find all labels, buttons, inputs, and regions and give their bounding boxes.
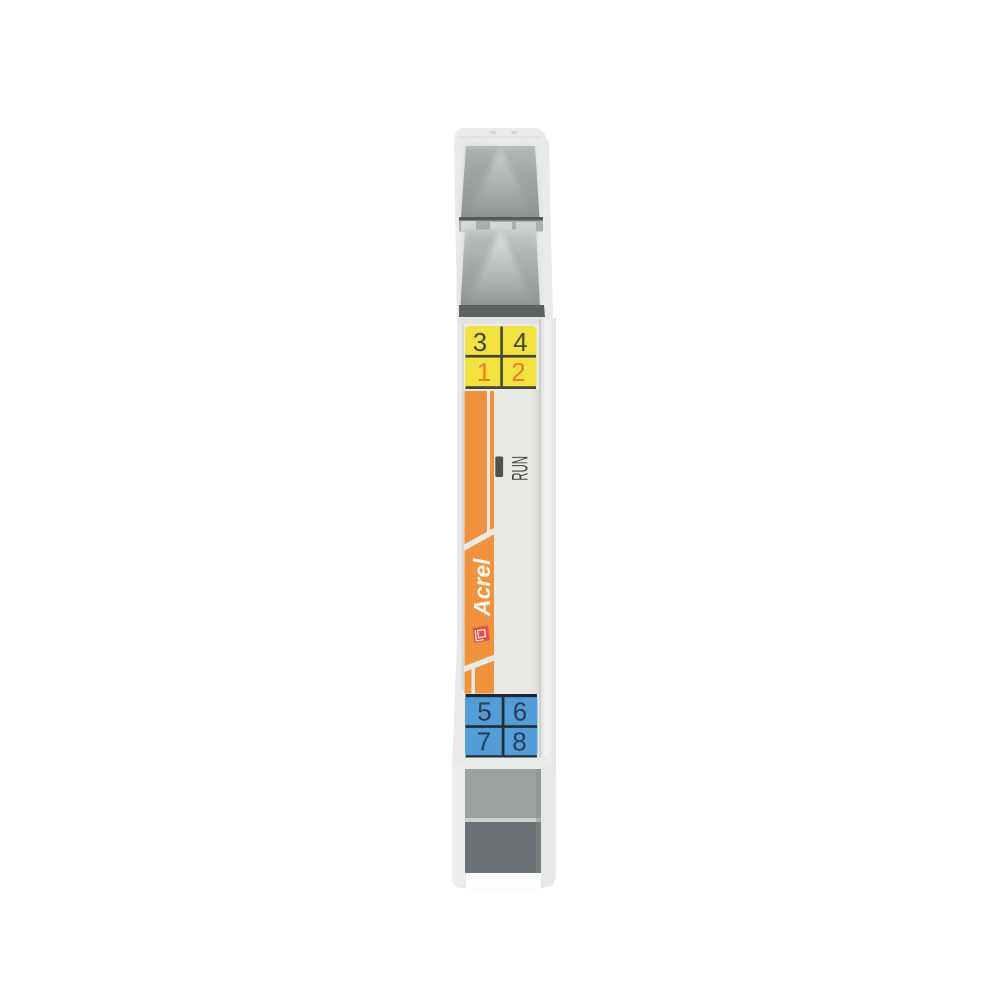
svg-text:5: 5 bbox=[477, 697, 491, 727]
svg-text:4: 4 bbox=[513, 329, 527, 357]
svg-text:6: 6 bbox=[513, 697, 527, 727]
svg-text:1: 1 bbox=[477, 359, 491, 387]
svg-text:Acrel: Acrel bbox=[469, 558, 495, 617]
svg-text:2: 2 bbox=[511, 359, 525, 387]
svg-text:7: 7 bbox=[477, 727, 491, 757]
svg-text:RUN: RUN bbox=[507, 456, 532, 481]
svg-text:8: 8 bbox=[512, 727, 526, 757]
svg-text:3: 3 bbox=[473, 329, 487, 357]
